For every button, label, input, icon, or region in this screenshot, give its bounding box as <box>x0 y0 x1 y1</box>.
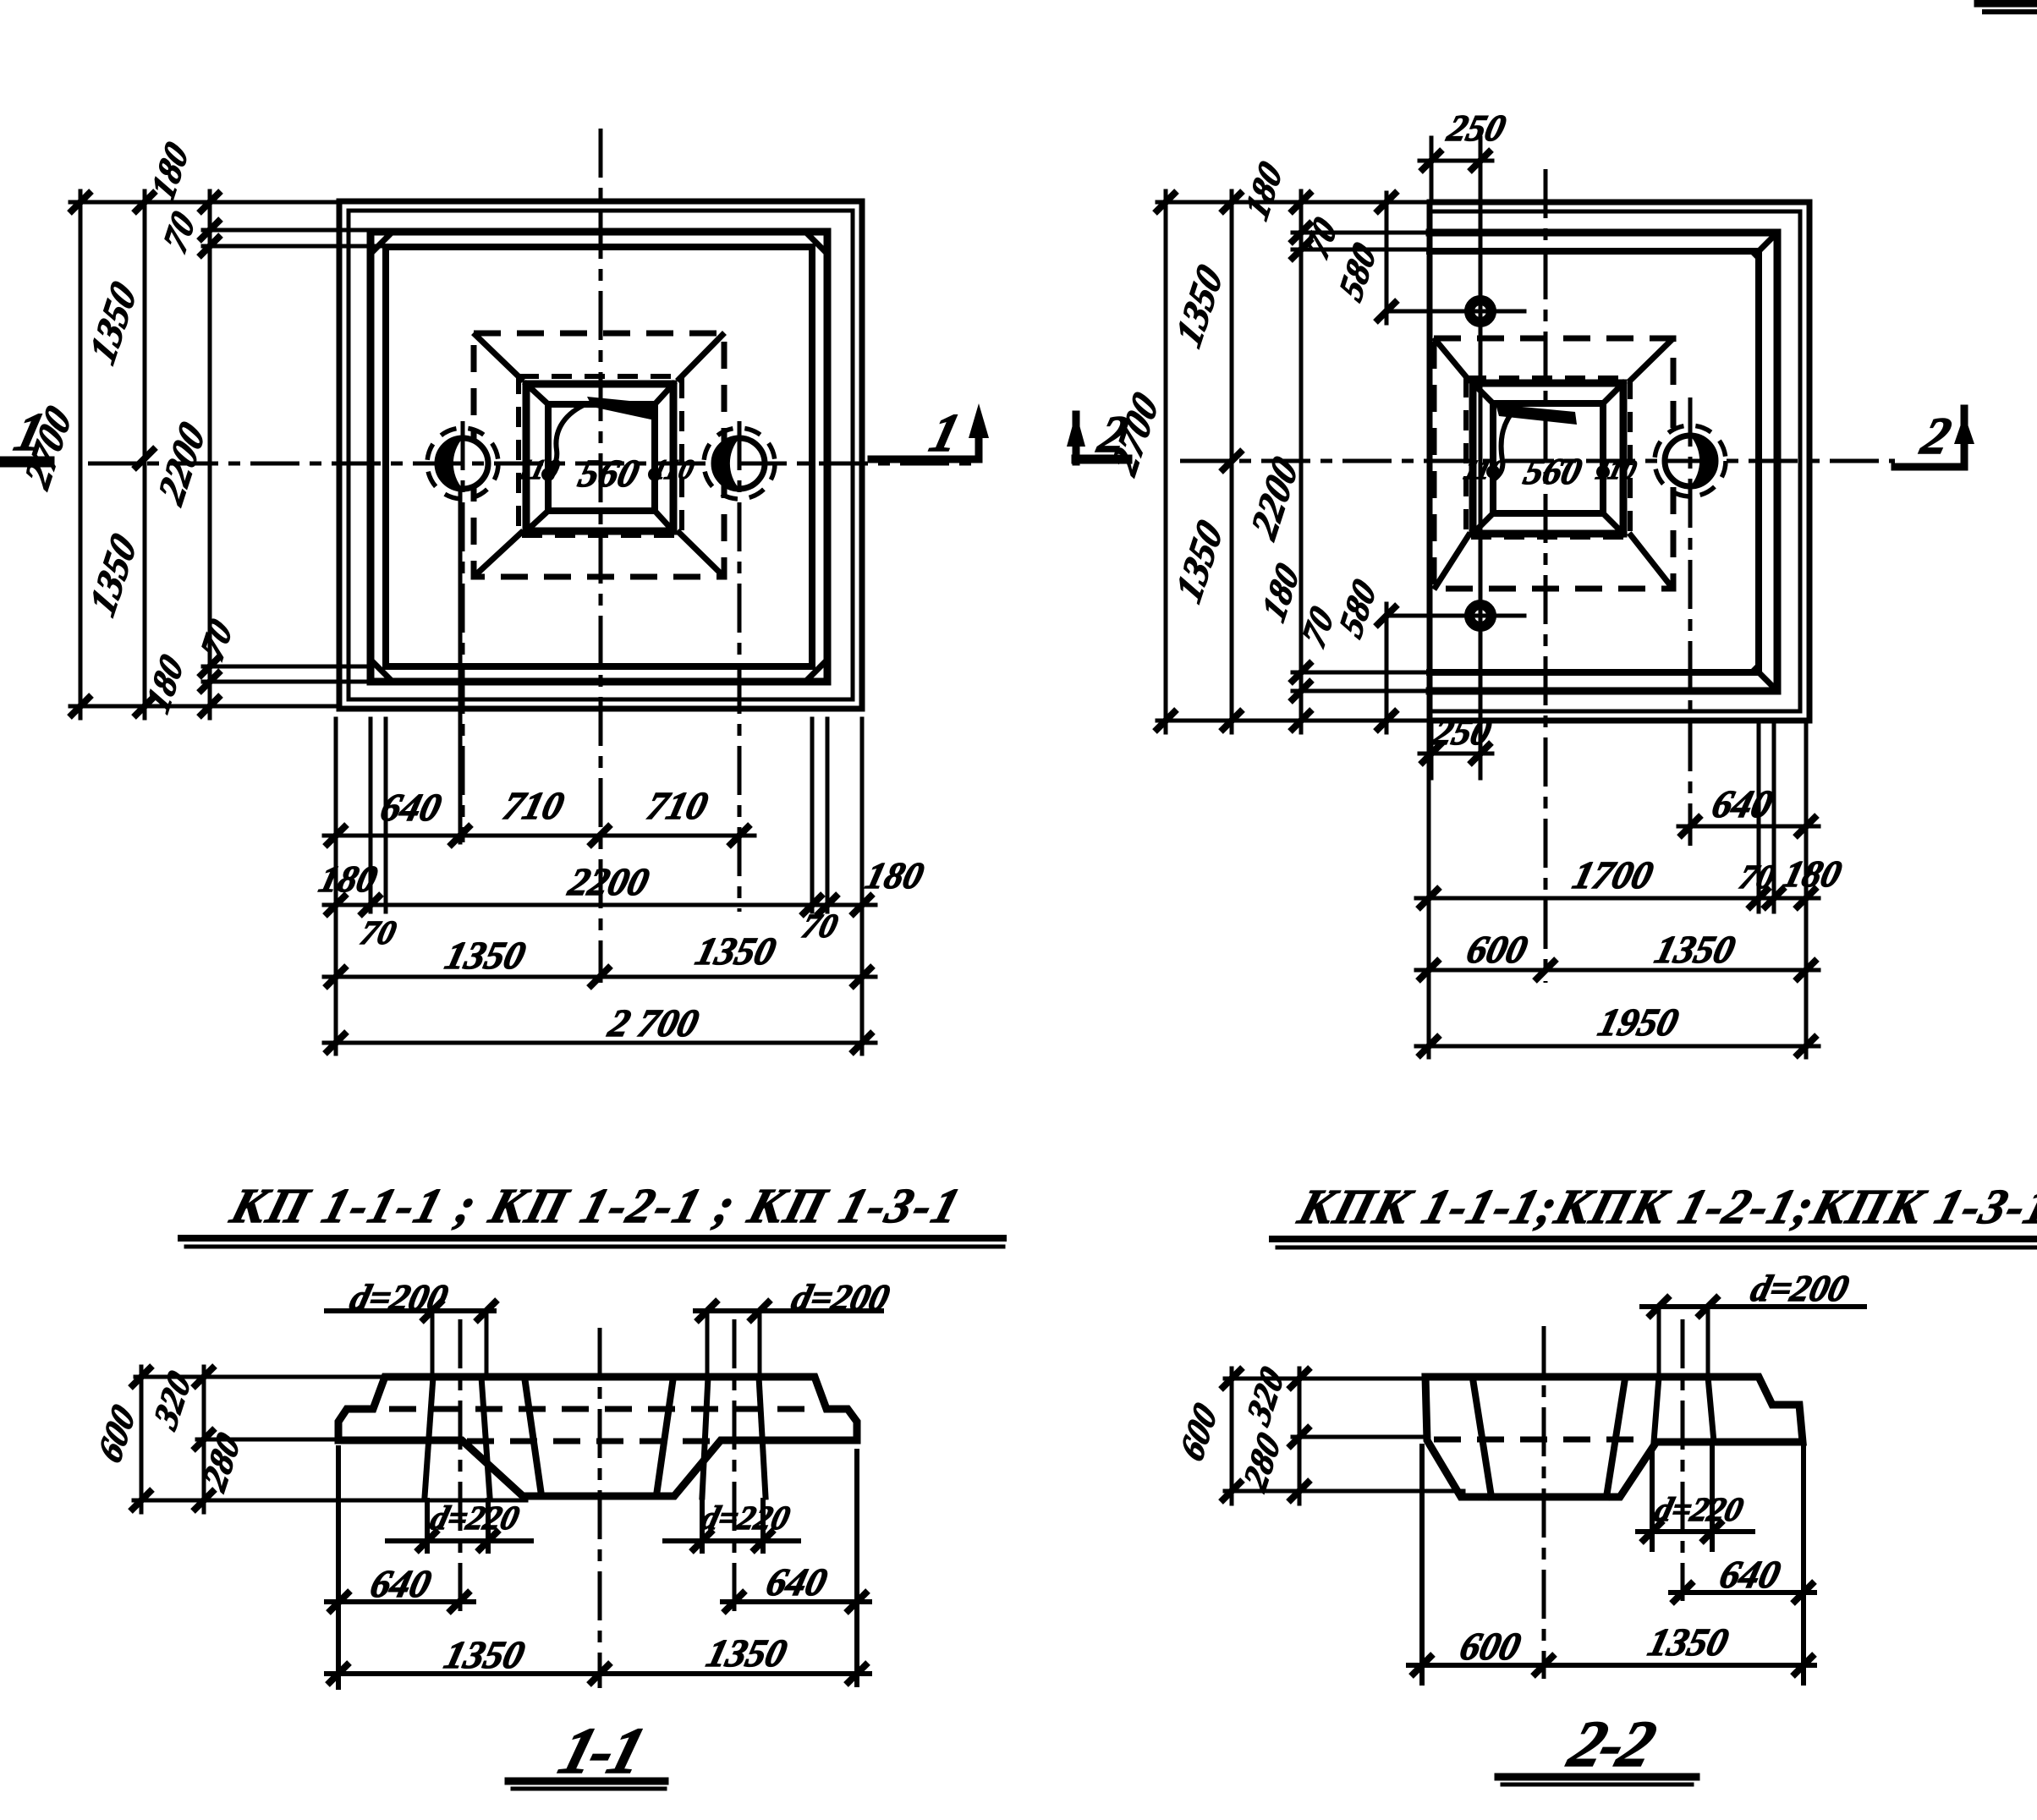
svg-text:640: 640 <box>376 787 446 830</box>
svg-text:180: 180 <box>1780 853 1846 895</box>
svg-text:1350: 1350 <box>441 935 530 978</box>
svg-text:180: 180 <box>316 858 382 900</box>
svg-text:710: 710 <box>499 785 568 828</box>
svg-text:1350: 1350 <box>702 1632 791 1675</box>
svg-text:180: 180 <box>862 855 928 896</box>
svg-text:110: 110 <box>514 454 563 485</box>
svg-text:2 700: 2 700 <box>604 1002 703 1045</box>
svg-text:250: 250 <box>1429 711 1496 753</box>
svg-text:1350: 1350 <box>1650 929 1739 972</box>
svg-text:560: 560 <box>1520 451 1586 492</box>
svg-text:1950: 1950 <box>1594 1001 1683 1044</box>
svg-text:640: 640 <box>1716 1554 1785 1597</box>
svg-text:d=220: d=220 <box>697 1499 793 1537</box>
svg-text:710: 710 <box>643 785 712 828</box>
svg-text:640: 640 <box>762 1561 832 1604</box>
svg-text:640: 640 <box>1708 783 1777 826</box>
svg-text:1700: 1700 <box>1568 854 1657 897</box>
svg-text:2200: 2200 <box>563 861 653 904</box>
svg-text:d=220: d=220 <box>1650 1491 1747 1528</box>
svg-text:d=200: d=200 <box>788 1277 893 1318</box>
svg-text:1350: 1350 <box>440 1634 529 1677</box>
svg-text:КП 1-1-1 ; КП 1-2-1 ; КП 1-3-1: КП 1-1-1 ; КП 1-2-1 ; КП 1-3-1 <box>224 1178 969 1233</box>
svg-text:560: 560 <box>574 452 644 496</box>
svg-text:640: 640 <box>366 1563 436 1606</box>
svg-text:600: 600 <box>1456 1625 1525 1669</box>
svg-text:КПК 1-1-1;КПК 1-2-1;КПК 1-3-1: КПК 1-1-1;КПК 1-2-1;КПК 1-3-1 <box>1292 1179 2037 1234</box>
svg-text:250: 250 <box>1443 107 1510 149</box>
svg-text:1350: 1350 <box>691 930 780 973</box>
svg-text:d=220: d=220 <box>426 1499 523 1537</box>
svg-text:d=200: d=200 <box>1747 1268 1853 1309</box>
svg-text:d=200: d=200 <box>346 1277 452 1318</box>
svg-text:600: 600 <box>1463 929 1532 972</box>
svg-text:1350: 1350 <box>1644 1621 1732 1664</box>
